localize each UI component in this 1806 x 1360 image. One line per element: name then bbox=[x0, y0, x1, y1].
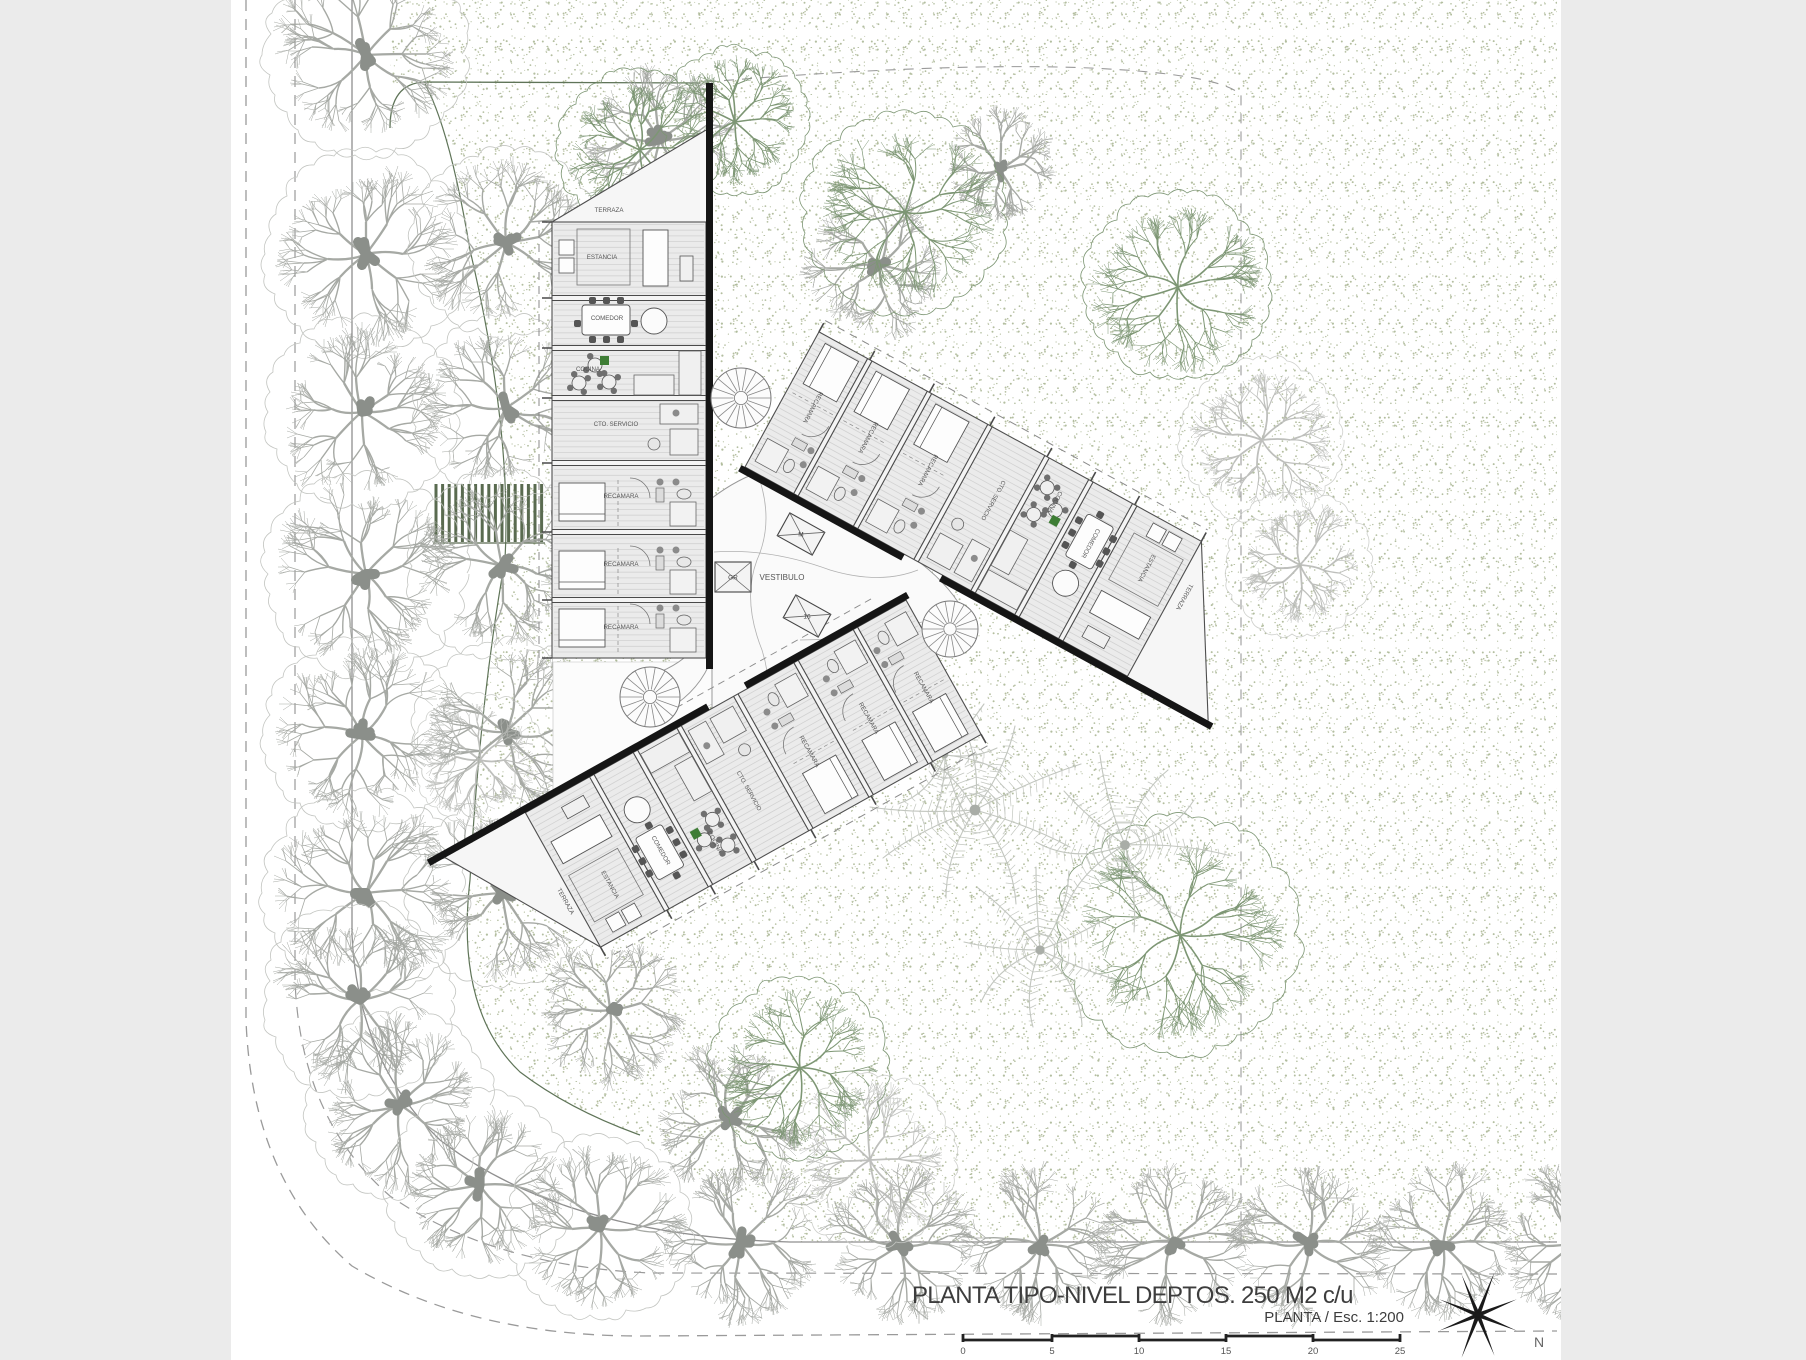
svg-text:PLANTA / Esc. 1:200: PLANTA / Esc. 1:200 bbox=[1264, 1309, 1404, 1326]
svg-text:15: 15 bbox=[1221, 1346, 1232, 1357]
svg-text:5: 5 bbox=[1049, 1346, 1054, 1357]
svg-text:COCINA: COCINA bbox=[576, 366, 601, 373]
svg-text:GR: GR bbox=[728, 575, 738, 582]
svg-text:10: 10 bbox=[1134, 1346, 1145, 1357]
svg-text:RECAMARA: RECAMARA bbox=[603, 493, 639, 500]
svg-text:RECAMARA: RECAMARA bbox=[603, 561, 639, 568]
svg-text:TERRAZA: TERRAZA bbox=[595, 207, 625, 214]
svg-text:VESTIBULO: VESTIBULO bbox=[760, 573, 805, 582]
svg-text:COMEDOR: COMEDOR bbox=[591, 315, 624, 322]
svg-text:20: 20 bbox=[1308, 1346, 1319, 1357]
svg-text:RECAMARA: RECAMARA bbox=[603, 624, 639, 631]
svg-text:ESTANCIA: ESTANCIA bbox=[587, 254, 618, 261]
svg-text:N: N bbox=[1534, 1334, 1544, 1350]
svg-text:CTO. SERVICIO: CTO. SERVICIO bbox=[594, 422, 639, 428]
svg-text:16: 16 bbox=[803, 614, 811, 621]
svg-text:25: 25 bbox=[1395, 1346, 1406, 1357]
svg-text:M: M bbox=[798, 532, 803, 539]
svg-text:0: 0 bbox=[960, 1346, 965, 1357]
svg-text:PLANTA TIPO-NIVEL DEPTOS. 250: PLANTA TIPO-NIVEL DEPTOS. 250 M2 c/u bbox=[912, 1282, 1353, 1309]
